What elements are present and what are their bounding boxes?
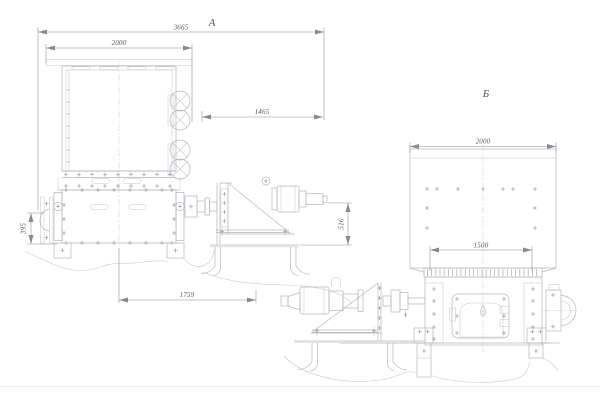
view-a-left-bracket [40,197,53,243]
dim-overall-label: 3665 [173,24,189,32]
door-hinge [450,308,456,321]
dim-hopper-b-label: 2000 [476,138,491,146]
view-b-title: Б [482,88,490,100]
door-latch-bottom [500,320,509,327]
view-b-supports [284,328,560,382]
dim-flange-b-label: 1500 [474,242,489,250]
belt-guard-a [220,183,295,234]
dim-motor-height-label: 516 [338,218,346,229]
dim-hopper-a-label: 2000 [112,39,127,47]
view-a-vibrators [168,91,190,179]
drawing-canvas: 3665 2000 1465 395 516 1759 А [0,0,600,400]
coupling-b [383,290,425,317]
view-a: 3665 2000 1465 395 516 1759 А [20,17,353,304]
motor-b [281,278,363,315]
view-b-body [425,277,542,345]
view-a-drive [185,177,327,276]
view-a-title: А [208,17,216,29]
dim-base-label: 1759 [180,291,195,299]
motor-a [272,186,327,212]
dim-drive-label: 1465 [255,108,270,116]
motor-cap [332,278,341,288]
inspection-door [450,294,510,338]
view-b-drive [281,278,425,372]
technical-drawing: 3665 2000 1465 395 516 1759 А [0,0,600,400]
view-b: 2000 1500 Б [281,88,577,382]
dim-left-height-label: 395 [20,223,28,235]
view-a-body [54,186,184,258]
view-b-bearing [543,285,577,332]
